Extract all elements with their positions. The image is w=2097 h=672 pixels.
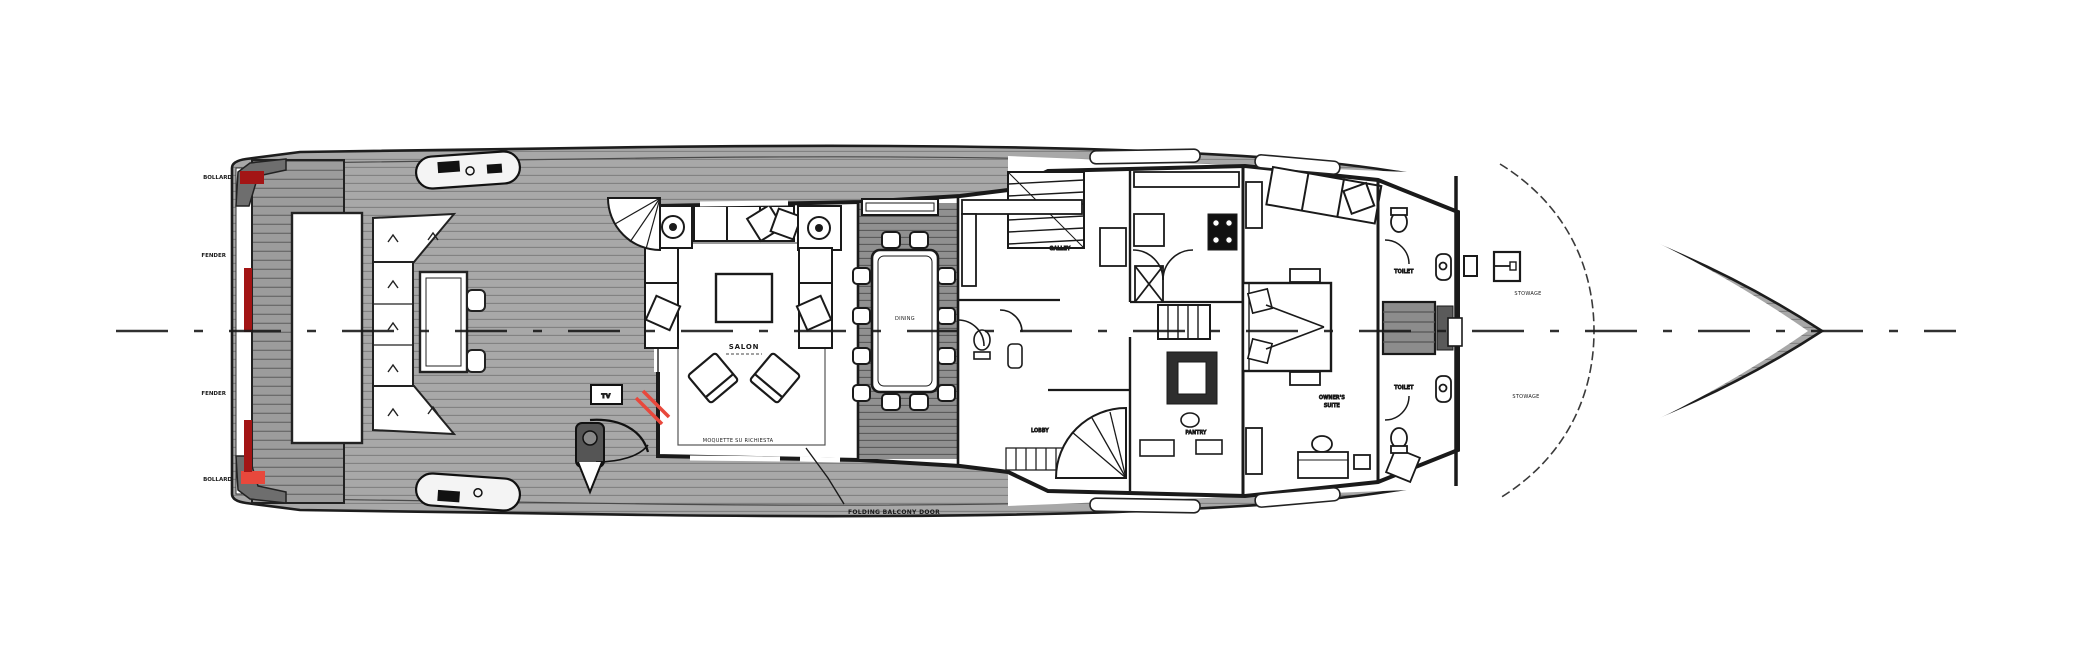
aft-deck-stool	[467, 290, 485, 311]
dining-label: DINING	[895, 316, 915, 322]
aft-deck-table-top	[426, 278, 461, 366]
bow-stowage-aft-label: STOWAGE	[1512, 394, 1539, 400]
stern-cleat-top	[240, 171, 264, 184]
tender-boat-starboard	[415, 472, 521, 511]
bath-fwd-label: TOILET	[1393, 269, 1414, 275]
annotation-label: FOLDING BALCONY DOOR	[848, 509, 940, 516]
salon-sofa-forward	[694, 205, 801, 241]
tv-label: TV	[601, 393, 610, 400]
dumbwaiter-lift	[1135, 266, 1163, 302]
fender-bar-bottom	[244, 420, 252, 472]
galley-label: GALLEY	[1050, 246, 1072, 252]
sideboard	[862, 199, 938, 215]
salon-label: SALON	[729, 343, 759, 351]
salon-sofa-port	[645, 248, 680, 348]
sink-icon	[1436, 254, 1451, 280]
wardrobe	[1246, 182, 1262, 228]
bow-door	[1448, 318, 1462, 346]
sink-icon	[1436, 376, 1451, 402]
bath-aft-label: TOILET	[1393, 385, 1414, 391]
toilet-icon	[1391, 428, 1407, 453]
stove-icon	[1208, 214, 1237, 250]
wardrobe	[1246, 428, 1262, 474]
aft-deck-stool	[467, 350, 485, 372]
deck-hatch-large	[1494, 252, 1520, 281]
deck-plan-drawing: BOLLARD FENDER FENDER BOLLARD	[0, 0, 2097, 672]
shower	[1383, 302, 1435, 354]
owner-label-2: SUITE	[1324, 403, 1340, 409]
bow-stowage-fwd-label: STOWAGE	[1514, 291, 1541, 297]
deck-plan-page: BOLLARD FENDER FENDER BOLLARD	[0, 0, 2097, 672]
toilet-icon	[1391, 208, 1407, 232]
pantry-label: PANTRY	[1186, 430, 1208, 436]
stern-mark-label: BOLLARD	[203, 175, 232, 181]
side-table-lamp	[798, 206, 841, 250]
coffee-table	[716, 274, 772, 322]
stern-mark-label: BOLLARD	[203, 477, 232, 483]
stern-mark-label: FENDER	[201, 253, 226, 259]
owner-label-1: OWNER'S	[1319, 395, 1345, 401]
tender-garage-hatch	[292, 213, 362, 443]
tender-boat-port	[415, 150, 521, 189]
stern-cleat-bottom	[241, 471, 265, 484]
staircase-down	[1158, 305, 1210, 339]
master-bed	[1243, 269, 1331, 385]
lobby-label: LOBBY	[1031, 428, 1049, 434]
deck-hatch-small	[1464, 256, 1477, 276]
salon-floor-note: MOQUETTE SU RICHIESTA	[703, 438, 774, 444]
stern-mark-label: FENDER	[201, 391, 226, 397]
salon-sofa-starboard	[797, 248, 832, 348]
fender-bar-top	[244, 268, 252, 332]
